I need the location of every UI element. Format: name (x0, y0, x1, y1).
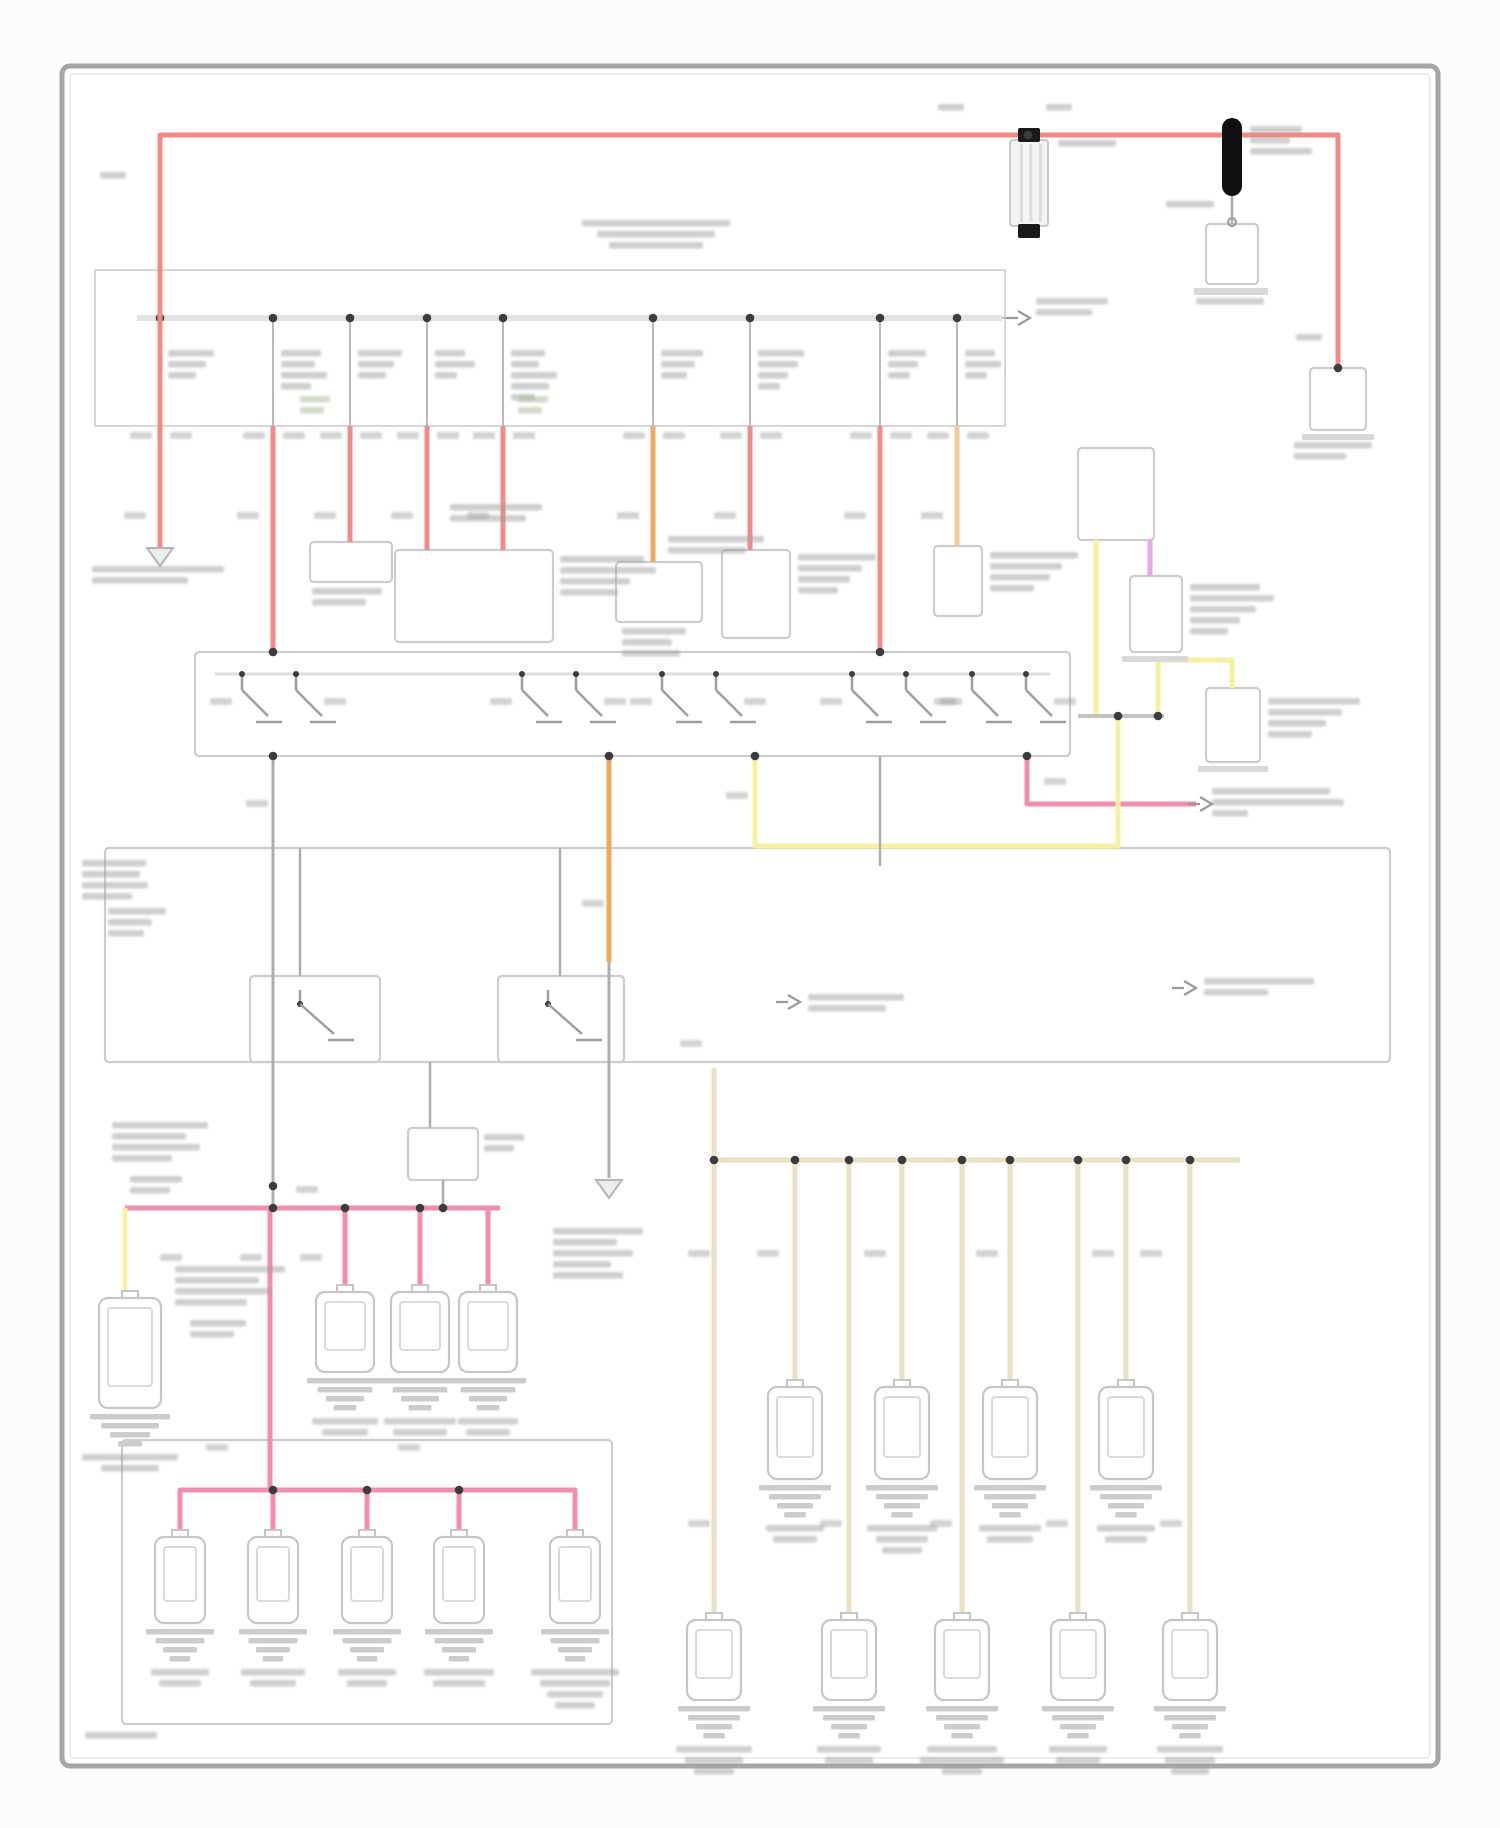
junction-dot (363, 1486, 372, 1495)
label-text-blurred (518, 396, 548, 403)
junction-dot (958, 1156, 967, 1165)
wire-color-tag-blurred (237, 512, 259, 519)
wiring-diagram-page (0, 0, 1500, 1828)
ground-stack-icon (469, 1396, 507, 1402)
label-text-blurred (108, 930, 144, 937)
ground-stack-icon (393, 1387, 448, 1393)
label-text-blurred (435, 372, 457, 379)
label-text-blurred (112, 1133, 186, 1140)
label-text-blurred (159, 1680, 201, 1687)
ground-stack-icon (318, 1387, 373, 1393)
label-text-blurred (808, 1005, 886, 1012)
ground-stack-icon (1108, 1503, 1144, 1509)
comp-box (722, 550, 790, 638)
ground-stack-icon (442, 1647, 476, 1653)
label-text-blurred (358, 350, 402, 357)
component-base-bar (1198, 766, 1268, 772)
ground-stack-icon (90, 1414, 170, 1420)
junction-dot (346, 314, 355, 323)
ground-stack-icon (1067, 1733, 1089, 1739)
label-text-blurred (108, 919, 152, 926)
junction-dot (849, 671, 855, 677)
label-text-blurred (668, 547, 746, 554)
label-text-blurred (553, 1261, 611, 1268)
wire-color-tag-blurred (714, 512, 736, 519)
wire-color-tag-blurred (617, 512, 639, 519)
wire-color-tag-blurred (760, 432, 782, 439)
wire-color-tag-blurred (1054, 698, 1076, 705)
ground-stack-icon (170, 1656, 190, 1662)
label-text-blurred (1190, 606, 1256, 613)
label-text-blurred (927, 1746, 997, 1753)
ground-stack-icon (769, 1494, 821, 1500)
wire-color-tag-blurred (726, 792, 748, 799)
ground-stack-icon (449, 1656, 469, 1662)
wire-color-tag-blurred (320, 432, 342, 439)
label-text-blurred (920, 1757, 1004, 1764)
wire-color-tag-blurred (206, 1444, 228, 1451)
label-text-blurred (101, 1465, 159, 1472)
label-text-blurred (484, 1145, 514, 1152)
label-text-blurred (82, 882, 148, 889)
label-text-blurred (82, 1454, 178, 1461)
comp-box (1206, 688, 1260, 762)
label-text-blurred (1157, 1746, 1223, 1753)
label-text-blurred (553, 1250, 633, 1257)
label-text-blurred (888, 361, 918, 368)
junction-dot (605, 752, 614, 761)
label-text-blurred (1046, 104, 1072, 111)
label-text-blurred (82, 893, 132, 900)
label-text-blurred (338, 1669, 396, 1676)
wire-color-tag-blurred (663, 432, 685, 439)
label-text-blurred (82, 860, 146, 867)
wire-color-tag-blurred (1044, 778, 1066, 785)
junction-dot (293, 671, 299, 677)
label-text-blurred (622, 639, 672, 646)
wire-color-tag-blurred (864, 1250, 886, 1257)
label-text-blurred (1036, 298, 1108, 305)
comp-box (1310, 368, 1366, 430)
label-text-blurred (435, 361, 475, 368)
label-text-blurred (435, 350, 465, 357)
label-text-blurred (300, 407, 324, 414)
device-body (550, 1537, 600, 1623)
wire-color-tag-blurred (688, 1520, 710, 1527)
ground-stack-icon (156, 1638, 205, 1644)
label-text-blurred (484, 1134, 524, 1141)
label-text-blurred (511, 361, 539, 368)
comp-box (310, 542, 392, 582)
label-text-blurred (888, 372, 910, 379)
comp-box (395, 550, 553, 642)
ground-stack-icon (146, 1629, 214, 1635)
wire-color-tag-blurred (397, 432, 419, 439)
label-text-blurred (965, 361, 1001, 368)
label-text-blurred (358, 372, 386, 379)
ground-stack-icon (936, 1715, 988, 1721)
junction-dot (659, 671, 665, 677)
label-text-blurred (876, 1536, 928, 1543)
ground-stack-icon (307, 1378, 383, 1384)
label-text-blurred (511, 383, 549, 390)
label-text-blurred (888, 350, 926, 357)
ground-stack-icon (477, 1405, 500, 1411)
label-text-blurred (661, 350, 703, 357)
label-text-blurred (1296, 334, 1322, 341)
wire-color-tag-blurred (1092, 1250, 1114, 1257)
label-text-blurred (798, 554, 876, 561)
ground-stack-icon (435, 1638, 484, 1644)
label-text-blurred (175, 1299, 247, 1306)
junction-dot (269, 648, 278, 657)
label-text-blurred (1250, 126, 1302, 133)
wire-color-tag-blurred (437, 432, 459, 439)
wire-color-tag-blurred (623, 432, 645, 439)
ground-stack-icon (884, 1503, 920, 1509)
wire-color-tag-blurred (490, 698, 512, 705)
label-text-blurred (540, 1680, 610, 1687)
label-text-blurred (1294, 442, 1372, 449)
label-text-blurred (758, 361, 798, 368)
junction-dot (341, 1204, 350, 1213)
wire-color-tag-blurred (820, 698, 842, 705)
junction-dot (1074, 1156, 1083, 1165)
ground-stack-icon (688, 1715, 740, 1721)
ground-stack-icon (409, 1405, 432, 1411)
label-text-blurred (518, 407, 542, 414)
fuse-box (95, 270, 1005, 426)
wire-color-tag-blurred (246, 800, 268, 807)
wire-color-tag-blurred (976, 1250, 998, 1257)
ground-stack-icon (891, 1512, 913, 1518)
junction-dot (423, 314, 432, 323)
ground-stack-icon (999, 1512, 1021, 1518)
junction-dot (269, 1486, 278, 1495)
junction-dot (416, 1204, 425, 1213)
ground-stack-icon (696, 1724, 732, 1730)
ground-stack-icon (118, 1441, 142, 1447)
ground-stack-icon (425, 1629, 493, 1635)
label-text-blurred (300, 396, 330, 403)
ground-stack-icon (450, 1378, 526, 1384)
label-text-blurred (1190, 584, 1260, 591)
wire-color-tag-blurred (820, 1520, 842, 1527)
ground-stack-icon (326, 1396, 364, 1402)
wire-color-tag-blurred (844, 512, 866, 519)
junction-dot (499, 314, 508, 323)
label-text-blurred (867, 1525, 937, 1532)
ground-stack-icon (784, 1512, 806, 1518)
label-text-blurred (130, 1176, 182, 1183)
component-base-bar (1194, 288, 1268, 295)
ground-stack-icon (565, 1656, 585, 1662)
wire-color-tag-blurred (240, 1254, 262, 1261)
ground-stack-icon (256, 1647, 290, 1653)
ground-stack-icon (974, 1485, 1046, 1491)
label-text-blurred (511, 372, 557, 379)
junction-dot (519, 671, 525, 677)
wire-color-tag-blurred (967, 432, 989, 439)
ground-stack-icon (759, 1485, 831, 1491)
ground-stack-icon (951, 1733, 973, 1739)
ground-stack-icon (984, 1494, 1036, 1500)
junction-dot (1334, 364, 1343, 373)
ground-stack-icon (110, 1432, 150, 1438)
label-text-blurred (597, 231, 715, 238)
label-text-blurred (622, 628, 686, 635)
label-text-blurred (1268, 731, 1312, 738)
label-text-blurred (560, 556, 644, 563)
wire-color-tag-blurred (744, 698, 766, 705)
wire-color-tag-blurred (940, 698, 962, 705)
label-text-blurred (281, 383, 311, 390)
ground-stack-icon (777, 1503, 813, 1509)
ground-stack-icon (263, 1656, 283, 1662)
label-text-blurred (676, 1746, 752, 1753)
label-text-blurred (979, 1525, 1041, 1532)
ground-stack-icon (1172, 1724, 1208, 1730)
label-text-blurred (798, 565, 862, 572)
wire-color-tag-blurred (930, 1520, 952, 1527)
wire-color-tag-blurred (582, 900, 604, 907)
label-text-blurred (168, 372, 196, 379)
wire-color-tag-blurred (630, 698, 652, 705)
label-text-blurred (250, 1680, 296, 1687)
label-text-blurred (112, 1122, 208, 1129)
ground-stack-icon (1042, 1706, 1114, 1712)
label-text-blurred (1097, 1525, 1155, 1532)
wire-color-tag-blurred (850, 432, 872, 439)
label-text-blurred (92, 577, 188, 584)
label-text-blurred (281, 372, 327, 379)
switch-box (498, 976, 624, 1062)
wire-color-tag-blurred (921, 512, 943, 519)
junction-dot (1024, 131, 1033, 140)
ground-stack-icon (703, 1733, 725, 1739)
label-text-blurred (938, 104, 964, 111)
junction-dot (1023, 752, 1032, 761)
label-text-blurred (168, 361, 206, 368)
label-text-blurred (582, 220, 730, 227)
label-text-blurred (82, 871, 140, 878)
label-text-blurred (312, 1418, 378, 1425)
junction-dot (713, 671, 719, 677)
label-text-blurred (1268, 698, 1360, 705)
generator-icon (1222, 118, 1242, 196)
ground-stack-icon (1100, 1494, 1152, 1500)
label-text-blurred (1058, 140, 1116, 147)
ground-stack-icon (1179, 1733, 1201, 1739)
ground-stack-icon (239, 1629, 307, 1635)
junction-dot (710, 1156, 719, 1165)
wire-color-tag-blurred (210, 698, 232, 705)
ground-stack-icon (992, 1503, 1028, 1509)
ground-stack-icon (678, 1706, 750, 1712)
label-text-blurred (130, 1187, 170, 1194)
label-text-blurred (825, 1757, 873, 1764)
label-text-blurred (450, 504, 542, 511)
label-text-blurred (112, 1144, 200, 1151)
ground-stack-icon (558, 1647, 592, 1653)
wire-color-tag-blurred (720, 432, 742, 439)
label-text-blurred (1250, 137, 1290, 144)
label-text-blurred (990, 585, 1034, 592)
ground-stack-icon (813, 1706, 885, 1712)
device-body (434, 1537, 484, 1623)
wire-color-tag-blurred (757, 1250, 779, 1257)
ground-stack-icon (357, 1656, 377, 1662)
label-text-blurred (1268, 709, 1342, 716)
label-text-blurred (312, 588, 382, 595)
label-text-blurred (168, 350, 214, 357)
label-text-blurred (466, 1429, 510, 1436)
wire-color-tag-blurred (604, 698, 626, 705)
comp-box (934, 546, 982, 616)
component-base-bar (1302, 434, 1374, 440)
wire-color-tag-blurred (314, 512, 336, 519)
label-text-blurred (1212, 799, 1344, 806)
junction-dot (1122, 1156, 1131, 1165)
label-text-blurred (560, 589, 618, 596)
label-text-blurred (85, 1732, 157, 1739)
label-text-blurred (322, 1429, 368, 1436)
label-text-blurred (1204, 978, 1314, 985)
ground-stack-icon (926, 1706, 998, 1712)
ground-stack-icon (334, 1405, 357, 1411)
label-text-blurred (1190, 628, 1228, 635)
battery-terminal-bottom-icon (1018, 224, 1040, 238)
junction-dot (269, 1182, 278, 1191)
label-text-blurred (547, 1691, 603, 1698)
junction-dot (791, 1156, 800, 1165)
junction-dot (1186, 1156, 1195, 1165)
label-text-blurred (942, 1768, 982, 1775)
label-text-blurred (190, 1320, 246, 1327)
label-text-blurred (555, 1702, 595, 1709)
junction-dot (269, 314, 278, 323)
label-text-blurred (100, 172, 126, 179)
label-text-blurred (1036, 309, 1092, 316)
device-body (155, 1537, 205, 1623)
junction-dot (439, 1204, 448, 1213)
label-text-blurred (685, 1757, 743, 1764)
label-text-blurred (622, 650, 680, 657)
junction-dot (1006, 1156, 1015, 1165)
ground-stack-icon (1060, 1724, 1096, 1730)
ground-stack-icon (823, 1715, 875, 1721)
label-text-blurred (987, 1536, 1033, 1543)
label-text-blurred (758, 383, 780, 390)
label-text-blurred (990, 563, 1062, 570)
junction-dot (903, 671, 909, 677)
label-text-blurred (531, 1669, 619, 1676)
junction-dot (455, 1486, 464, 1495)
wire-color-tag-blurred (391, 512, 413, 519)
wire-color-tag-blurred (688, 1250, 710, 1257)
label-text-blurred (1212, 788, 1330, 795)
junction-dot (269, 1204, 278, 1213)
wire-color-tag-blurred (1046, 1520, 1068, 1527)
label-text-blurred (511, 350, 545, 357)
label-text-blurred (882, 1547, 922, 1554)
label-text-blurred (190, 1331, 234, 1338)
ground-stack-icon (461, 1387, 516, 1393)
label-text-blurred (553, 1239, 617, 1246)
label-text-blurred (1105, 1536, 1147, 1543)
junction-dot (269, 752, 278, 761)
wire-color-tag-blurred (1140, 1250, 1162, 1257)
ground-stack-icon (382, 1378, 458, 1384)
label-text-blurred (458, 1418, 518, 1425)
junction-dot (1114, 712, 1123, 721)
label-text-blurred (773, 1536, 817, 1543)
label-text-blurred (1166, 201, 1214, 208)
label-text-blurred (553, 1228, 643, 1235)
ground-stack-icon (831, 1724, 867, 1730)
small-relay-box (408, 1128, 478, 1180)
ground-stack-icon (163, 1647, 197, 1653)
junction-dot (876, 314, 885, 323)
label-text-blurred (175, 1288, 271, 1295)
wire-color-tag-blurred (296, 1186, 318, 1193)
label-text-blurred (1204, 989, 1268, 996)
label-text-blurred (1165, 1757, 1215, 1764)
switch-box (250, 976, 380, 1062)
label-text-blurred (92, 566, 224, 573)
ground-stack-icon (866, 1485, 938, 1491)
label-text-blurred (424, 1669, 494, 1676)
label-text-blurred (661, 361, 695, 368)
wire-color-tag-blurred (300, 1254, 322, 1261)
comp-box (1130, 576, 1182, 652)
label-text-blurred (1196, 298, 1264, 305)
wire-color-tag-blurred (360, 432, 382, 439)
ground-stack-icon (1154, 1706, 1226, 1712)
wire-color-tag-blurred (283, 432, 305, 439)
label-text-blurred (1056, 1757, 1100, 1764)
junction-dot (751, 752, 760, 761)
ground-stack-icon (343, 1638, 392, 1644)
junction-dot (1023, 671, 1029, 677)
wire-color-tag-blurred (124, 512, 146, 519)
wire-color-tag-blurred (890, 432, 912, 439)
wire-color-tag-blurred (1160, 1520, 1182, 1527)
wire-color-tag-blurred (170, 432, 192, 439)
junction-dot (898, 1156, 907, 1165)
wire-color-tag-blurred (398, 1444, 420, 1451)
label-text-blurred (281, 361, 315, 368)
label-text-blurred (241, 1669, 305, 1676)
label-text-blurred (281, 350, 321, 357)
wire-color-tag-blurred (160, 1254, 182, 1261)
label-text-blurred (560, 567, 656, 574)
ground-stack-icon (944, 1724, 980, 1730)
junction-dot (969, 671, 975, 677)
junction-dot (845, 1156, 854, 1165)
ground-stack-icon (249, 1638, 298, 1644)
junction-dot (1154, 712, 1163, 721)
wiring-diagram-canvas (0, 0, 1500, 1828)
comp-box (1078, 448, 1154, 540)
label-text-blurred (990, 574, 1050, 581)
label-text-blurred (1294, 453, 1346, 460)
label-text-blurred (808, 994, 904, 1001)
label-text-blurred (108, 908, 166, 915)
label-text-blurred (1190, 595, 1274, 602)
label-text-blurred (384, 1418, 456, 1425)
label-text-blurred (1049, 1746, 1107, 1753)
